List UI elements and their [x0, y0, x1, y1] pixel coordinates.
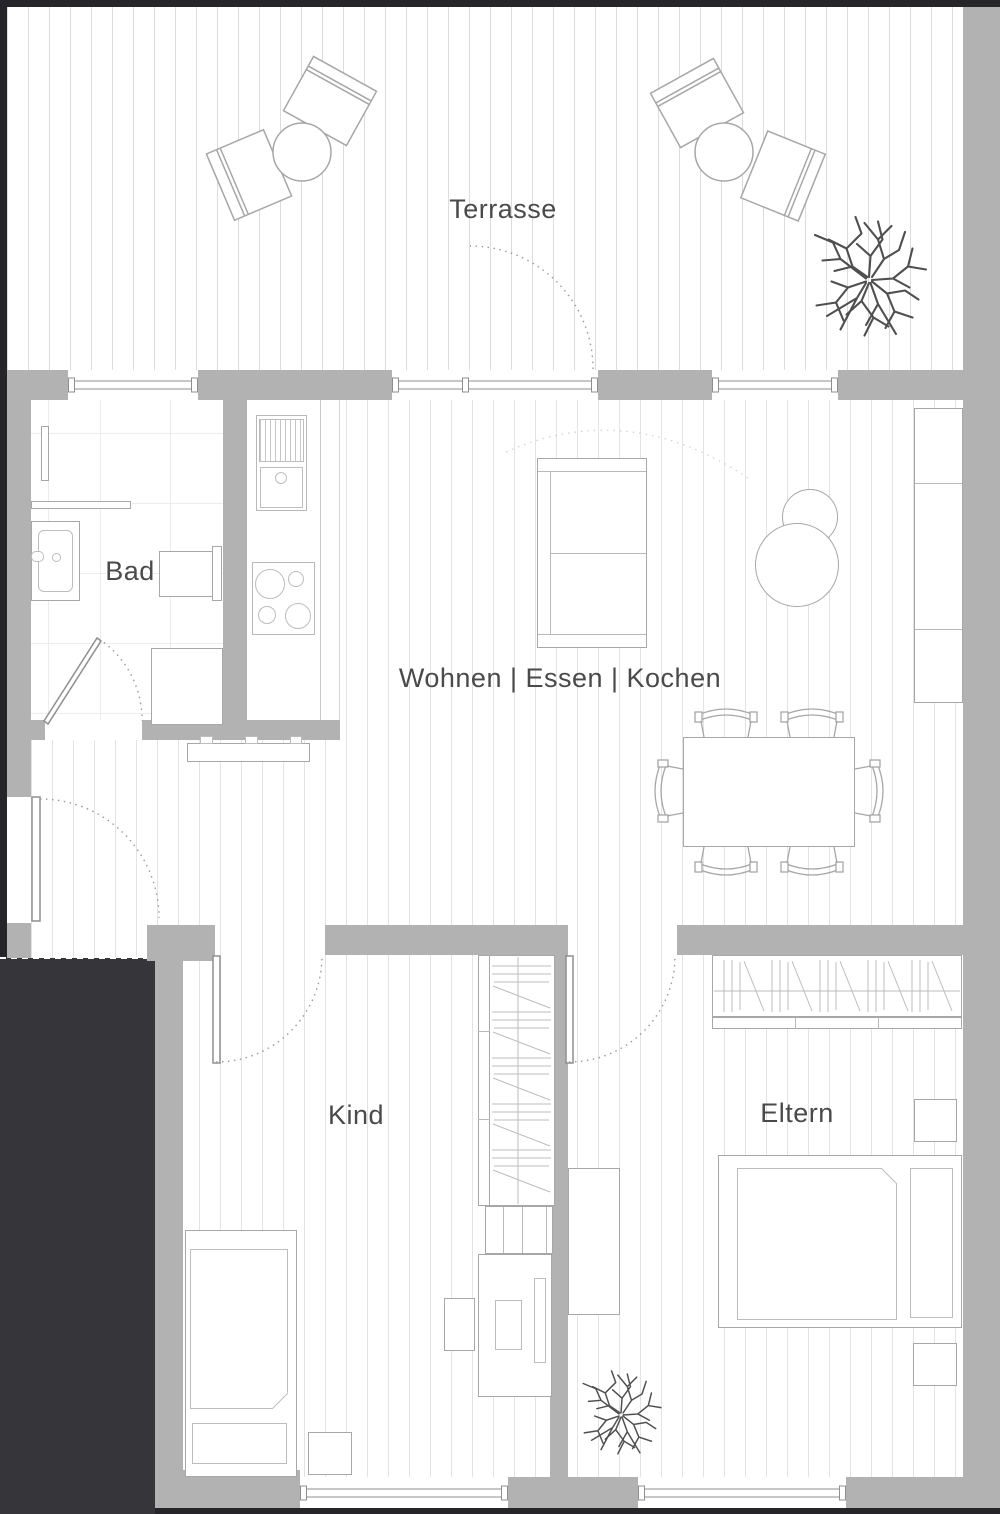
wall-bath-kitchen — [223, 400, 247, 728]
kitchen-counter-edge — [320, 400, 321, 720]
hall-sideboard-foot — [245, 736, 258, 744]
void-area — [0, 958, 155, 1514]
wall-mid-c — [677, 925, 963, 955]
sideboard — [914, 408, 963, 703]
wall-west-lower — [7, 923, 31, 958]
terrace-floor — [7, 7, 963, 370]
bath-shelf — [31, 501, 131, 509]
hall-sideboard-foot — [200, 736, 213, 744]
window-cap — [591, 378, 598, 393]
window-cap — [300, 1485, 307, 1500]
wall-mid-b — [325, 925, 568, 955]
nightstand — [913, 1343, 957, 1386]
window-pane — [714, 381, 836, 390]
entry-door-opening — [7, 797, 31, 923]
wall-north-c — [598, 370, 712, 400]
parents-pillow — [910, 1168, 953, 1318]
wardrobe-front-divider — [878, 1017, 879, 1029]
label-living: Wohnen | Essen | Kochen — [399, 663, 721, 694]
window-cap — [392, 378, 399, 393]
window-pane — [394, 381, 596, 390]
kitchen-drainer — [259, 419, 304, 462]
hall-sideboard — [187, 743, 310, 762]
wall-south-b — [508, 1477, 638, 1508]
wall-bath-south-a — [31, 720, 45, 740]
desk-monitor — [495, 1300, 522, 1350]
window-parents — [638, 1477, 846, 1508]
nightstand — [914, 1099, 957, 1142]
burner-small-1 — [288, 571, 304, 587]
sideboard-divider — [915, 483, 962, 484]
towel-radiator — [41, 426, 49, 481]
burner-small-2 — [258, 606, 276, 624]
window-cap — [68, 378, 75, 393]
site-boundary-top — [0, 0, 1000, 7]
child-dresser — [485, 1206, 553, 1254]
window-pane — [640, 1488, 844, 1497]
label-parents: Eltern — [760, 1098, 834, 1129]
sofa-cushion-line — [551, 553, 646, 554]
washbasin-faucet — [31, 551, 44, 562]
parents-wardrobe — [712, 955, 962, 1017]
wall-east — [963, 7, 1000, 1508]
dining-table — [683, 737, 855, 847]
dresser-divider — [522, 1207, 523, 1253]
parents-dresser — [568, 1168, 620, 1315]
desk-chair — [444, 1298, 475, 1351]
window-pane — [70, 381, 196, 390]
nightstand — [308, 1432, 352, 1475]
window-cap — [839, 1485, 846, 1500]
window-cap — [501, 1485, 508, 1500]
site-boundary-bottom — [150, 1508, 1000, 1514]
window-cap — [638, 1485, 645, 1500]
window-cap — [191, 378, 198, 393]
kitchen-faucet — [275, 472, 287, 484]
wc-cistern — [212, 546, 222, 601]
armchair — [755, 523, 839, 607]
label-terrace: Terrasse — [449, 194, 557, 225]
hall-sideboard-foot — [290, 736, 302, 744]
window-child — [300, 1477, 508, 1508]
bath-door-opening — [45, 720, 142, 740]
desk-item — [534, 1278, 546, 1363]
child-wardrobe-front — [478, 955, 490, 1206]
wardrobe-front-divider — [795, 1017, 796, 1029]
wall-south-c — [846, 1477, 963, 1508]
window-pane — [302, 1488, 506, 1497]
site-boundary-left — [0, 7, 7, 958]
child-pillow — [192, 1423, 287, 1464]
wardrobe-front-divider — [478, 1031, 490, 1032]
wc-unit — [159, 551, 213, 597]
window-living — [712, 370, 838, 400]
window-bath — [68, 370, 198, 400]
washbasin-drain — [52, 553, 61, 562]
parents-wardrobe-front — [712, 1017, 962, 1029]
wall-child-west — [155, 955, 183, 1477]
wall-north-d — [838, 370, 963, 400]
sideboard-divider — [915, 629, 962, 630]
sofa-armrest-line — [538, 634, 646, 635]
burner-large-1 — [255, 569, 285, 599]
terrace-door-window — [392, 370, 598, 400]
window-cap — [831, 378, 838, 393]
wall-north-b — [198, 370, 392, 400]
label-child: Kind — [328, 1100, 384, 1131]
label-bath: Bad — [105, 556, 155, 587]
parents-duvet — [737, 1168, 897, 1320]
burner-large-2 — [285, 603, 311, 629]
dresser-divider — [546, 1207, 547, 1253]
floor-plan: Terrasse Wohnen | Essen | Kochen Bad Kin… — [0, 0, 1000, 1514]
washing-machine — [151, 648, 223, 725]
sofa-armrest-line — [538, 471, 646, 472]
dresser-divider — [503, 1207, 504, 1253]
window-cap — [712, 378, 719, 393]
wardrobe-front-divider — [478, 1119, 490, 1120]
child-duvet — [190, 1249, 288, 1409]
window-cap — [462, 378, 469, 393]
wall-west-upper — [7, 370, 31, 797]
